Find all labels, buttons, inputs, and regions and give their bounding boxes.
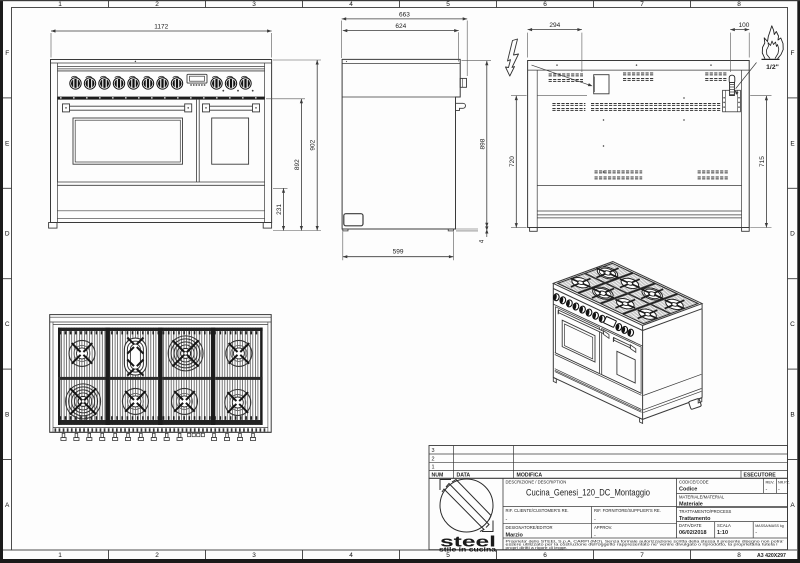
- svg-text:stile in cucina: stile in cucina: [439, 547, 496, 554]
- svg-text:898: 898: [479, 138, 486, 149]
- svg-text:1: 1: [432, 465, 435, 471]
- svg-text:1172: 1172: [154, 24, 168, 31]
- svg-text:Cucina_Genesi_120_DC_Montaggio: Cucina_Genesi_120_DC_Montaggio: [526, 488, 650, 498]
- svg-text:DESIGNATORE/EDITOR: DESIGNATORE/EDITOR: [506, 525, 553, 530]
- svg-text:ESECUTORE: ESECUTORE: [744, 473, 777, 479]
- svg-text:MATERIALE/MATERIAL: MATERIALE/MATERIAL: [679, 495, 725, 500]
- svg-text:-: -: [778, 486, 780, 492]
- svg-text:-: -: [506, 517, 508, 523]
- svg-text:B: B: [790, 412, 794, 419]
- svg-text:5: 5: [446, 1, 450, 8]
- svg-text:APPROV.: APPROV.: [594, 525, 612, 530]
- svg-text:599: 599: [393, 249, 404, 256]
- svg-text:CODICE/CODE: CODICE/CODE: [679, 479, 709, 484]
- svg-text:SCALA: SCALA: [717, 523, 731, 528]
- svg-text:663: 663: [399, 11, 410, 18]
- svg-text:D: D: [5, 231, 10, 238]
- svg-text:1/2": 1/2": [766, 64, 779, 71]
- svg-text:D: D: [790, 231, 795, 238]
- svg-text:Marzio: Marzio: [506, 532, 524, 538]
- svg-text:A3 420X297: A3 420X297: [757, 553, 786, 559]
- svg-text:2: 2: [432, 457, 435, 463]
- svg-text:F: F: [5, 50, 9, 57]
- svg-text:3: 3: [252, 552, 256, 559]
- svg-text:NR.PZ.: NR.PZ.: [778, 480, 790, 484]
- svg-text:F: F: [791, 50, 795, 57]
- svg-text:1: 1: [58, 552, 62, 559]
- svg-text:MASSA/MASS kg: MASSA/MASS kg: [755, 524, 784, 528]
- svg-text:1: 1: [58, 1, 62, 8]
- svg-text:8: 8: [737, 552, 741, 559]
- svg-text:DATA/DATE: DATA/DATE: [679, 523, 702, 528]
- svg-text:-: -: [766, 486, 768, 492]
- svg-text:6: 6: [543, 552, 547, 559]
- svg-text:propri diritti a rigore di leg: propri diritti a rigore di legge.: [506, 546, 568, 550]
- svg-text:TRATTAMENTO/PROCESS: TRATTAMENTO/PROCESS: [679, 509, 732, 514]
- svg-text:B: B: [5, 412, 9, 419]
- svg-text:MODIFICA: MODIFICA: [517, 473, 543, 479]
- svg-text:Trattamento: Trattamento: [679, 516, 711, 522]
- svg-text:A: A: [5, 502, 10, 509]
- svg-text:294: 294: [549, 22, 560, 29]
- svg-text:C: C: [5, 321, 10, 328]
- svg-text:NUM: NUM: [432, 473, 444, 479]
- svg-text:6: 6: [543, 1, 547, 8]
- svg-text:C: C: [790, 321, 795, 328]
- svg-text:8: 8: [737, 1, 741, 8]
- svg-text:Codice: Codice: [679, 486, 697, 492]
- svg-text:3: 3: [252, 1, 256, 8]
- svg-text:100: 100: [739, 22, 750, 29]
- svg-text:REV.: REV.: [766, 479, 775, 484]
- svg-text:624: 624: [395, 23, 406, 30]
- svg-text:231: 231: [276, 204, 283, 215]
- svg-text:E: E: [790, 140, 795, 147]
- svg-text:RIF. CLIENTE/CUSTOMER'S RE.: RIF. CLIENTE/CUSTOMER'S RE.: [506, 508, 569, 513]
- svg-text:2: 2: [155, 552, 159, 559]
- svg-text:7: 7: [640, 1, 644, 8]
- svg-text:A: A: [790, 502, 795, 509]
- svg-text:06/02/2018: 06/02/2018: [679, 530, 707, 536]
- svg-text:7: 7: [640, 552, 644, 559]
- svg-text:DESCRIZIONE / DESCRIPTION: DESCRIZIONE / DESCRIPTION: [506, 479, 567, 484]
- svg-text:4: 4: [349, 552, 353, 559]
- svg-text:2: 2: [155, 1, 159, 8]
- svg-text:720: 720: [509, 156, 516, 167]
- svg-text:3: 3: [432, 448, 435, 454]
- svg-text:892: 892: [294, 159, 301, 170]
- svg-text:902: 902: [310, 139, 317, 150]
- svg-text:E: E: [5, 140, 10, 147]
- svg-text:-: -: [755, 530, 757, 536]
- svg-text:RIF. FORNITORE/SUPPLIER'S RE.: RIF. FORNITORE/SUPPLIER'S RE.: [594, 508, 661, 513]
- svg-text:-: -: [594, 532, 596, 538]
- svg-text:4: 4: [349, 1, 353, 8]
- svg-text:DATA: DATA: [457, 473, 471, 479]
- svg-text:715: 715: [759, 156, 766, 167]
- svg-text:1:10: 1:10: [717, 530, 728, 536]
- svg-text:-: -: [594, 517, 596, 523]
- svg-text:Materiale: Materiale: [679, 502, 703, 508]
